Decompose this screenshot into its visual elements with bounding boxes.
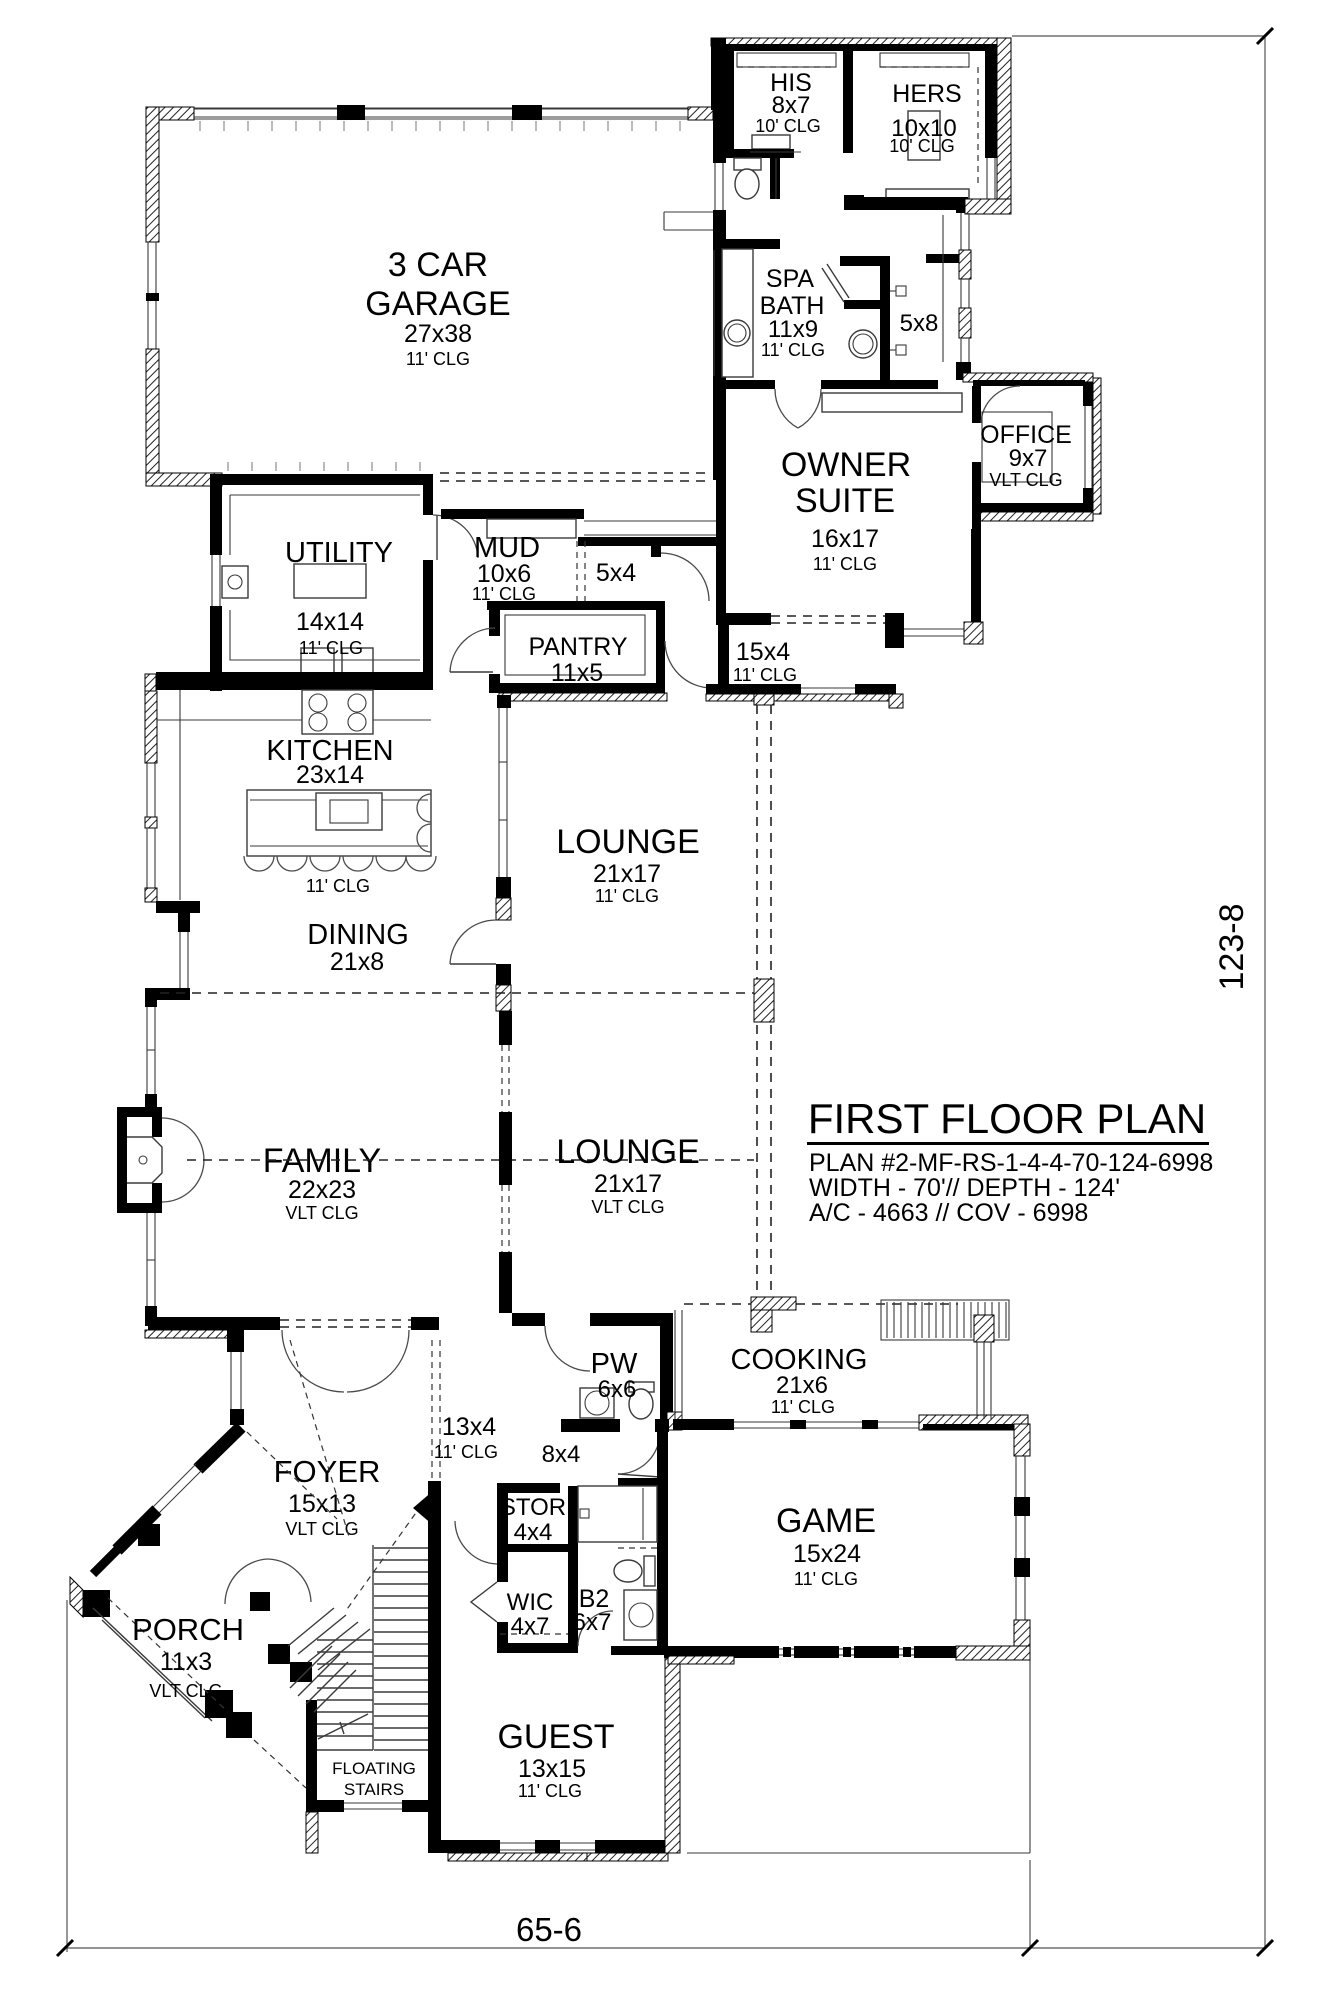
svg-text:A/C - 4663 // COV - 6998: A/C - 4663 // COV - 6998 xyxy=(809,1199,1088,1227)
svg-text:11' CLG: 11' CLG xyxy=(299,638,363,658)
svg-text:4x4: 4x4 xyxy=(514,1519,553,1546)
svg-text:PORCH: PORCH xyxy=(132,1612,244,1647)
svg-text:5x8: 5x8 xyxy=(900,310,939,337)
svg-text:11' CLG: 11' CLG xyxy=(761,340,825,360)
svg-text:27x38: 27x38 xyxy=(404,320,472,348)
svg-text:HERS: HERS xyxy=(892,80,961,108)
svg-text:8x4: 8x4 xyxy=(542,1441,581,1468)
svg-text:11' CLG: 11' CLG xyxy=(518,1781,582,1801)
svg-text:STAIRS: STAIRS xyxy=(344,1780,404,1799)
svg-text:8x7: 8x7 xyxy=(772,92,811,119)
svg-text:FOYER: FOYER xyxy=(274,1454,381,1489)
svg-text:23x14: 23x14 xyxy=(296,761,364,789)
svg-text:22x23: 22x23 xyxy=(288,1176,356,1204)
svg-text:123-8: 123-8 xyxy=(1213,904,1251,991)
svg-text:VLT CLG: VLT CLG xyxy=(285,1203,358,1223)
svg-text:FIRST FLOOR PLAN: FIRST FLOOR PLAN xyxy=(808,1095,1206,1142)
svg-text:4x7: 4x7 xyxy=(511,1613,550,1640)
svg-text:11' CLG: 11' CLG xyxy=(771,1397,835,1417)
svg-text:21x17: 21x17 xyxy=(594,1170,662,1198)
svg-text:13x4: 13x4 xyxy=(442,1413,496,1441)
svg-text:VLT CLG: VLT CLG xyxy=(285,1519,358,1539)
svg-text:SPA: SPA xyxy=(766,265,814,293)
svg-text:GAME: GAME xyxy=(776,1502,876,1540)
svg-text:5x4: 5x4 xyxy=(596,559,636,587)
svg-text:11x9: 11x9 xyxy=(768,316,818,343)
svg-text:13x15: 13x15 xyxy=(518,1755,586,1783)
svg-text:21x17: 21x17 xyxy=(593,860,661,888)
svg-text:10' CLG: 10' CLG xyxy=(889,136,954,156)
svg-text:11x5: 11x5 xyxy=(551,659,603,687)
svg-text:STOR: STOR xyxy=(500,1494,566,1521)
svg-text:LOUNGE: LOUNGE xyxy=(556,823,700,861)
svg-text:PLAN #2-MF-RS-1-4-4-70-124-699: PLAN #2-MF-RS-1-4-4-70-124-6998 xyxy=(809,1149,1213,1177)
svg-text:14x14: 14x14 xyxy=(296,608,364,636)
svg-text:9x7: 9x7 xyxy=(1009,445,1048,472)
svg-text:PANTRY: PANTRY xyxy=(528,633,627,661)
svg-text:LOUNGE: LOUNGE xyxy=(556,1133,700,1171)
svg-text:FLOATING: FLOATING xyxy=(332,1759,416,1778)
svg-text:WIC: WIC xyxy=(507,1589,554,1616)
svg-text:11' CLG: 11' CLG xyxy=(813,554,877,574)
svg-text:6x7: 6x7 xyxy=(573,1609,612,1636)
svg-text:UTILITY: UTILITY xyxy=(285,537,393,569)
svg-text:11' CLG: 11' CLG xyxy=(434,1442,498,1462)
svg-text:SUITE: SUITE xyxy=(795,482,895,520)
svg-text:65-6: 65-6 xyxy=(516,1911,582,1948)
svg-text:16x17: 16x17 xyxy=(811,525,879,553)
svg-text:11' CLG: 11' CLG xyxy=(595,886,659,906)
svg-text:VLT CLG: VLT CLG xyxy=(591,1197,664,1217)
svg-text:GUEST: GUEST xyxy=(497,1718,614,1756)
svg-text:VLT CLG: VLT CLG xyxy=(149,1681,222,1701)
svg-text:11' CLG: 11' CLG xyxy=(406,349,470,369)
svg-text:15x4: 15x4 xyxy=(736,638,790,666)
svg-text:11x3: 11x3 xyxy=(160,1648,212,1676)
svg-text:21x8: 21x8 xyxy=(330,948,384,976)
svg-text:DINING: DINING xyxy=(307,919,409,951)
svg-text:11' CLG: 11' CLG xyxy=(306,876,370,896)
svg-text:VLT CLG: VLT CLG xyxy=(989,470,1062,490)
svg-text:FAMILY: FAMILY xyxy=(263,1142,381,1180)
svg-text:3 CAR: 3 CAR xyxy=(388,246,488,284)
svg-text:21x6: 21x6 xyxy=(776,1372,828,1399)
svg-text:15x24: 15x24 xyxy=(793,1540,861,1568)
svg-text:11' CLG: 11' CLG xyxy=(733,665,797,685)
svg-text:WIDTH - 70'// DEPTH - 124': WIDTH - 70'// DEPTH - 124' xyxy=(809,1174,1120,1202)
svg-text:GARAGE: GARAGE xyxy=(365,285,510,323)
svg-text:11' CLG: 11' CLG xyxy=(794,1569,858,1589)
svg-text:10' CLG: 10' CLG xyxy=(755,116,820,136)
svg-text:6x6: 6x6 xyxy=(598,1376,637,1403)
svg-text:OWNER: OWNER xyxy=(781,446,911,484)
